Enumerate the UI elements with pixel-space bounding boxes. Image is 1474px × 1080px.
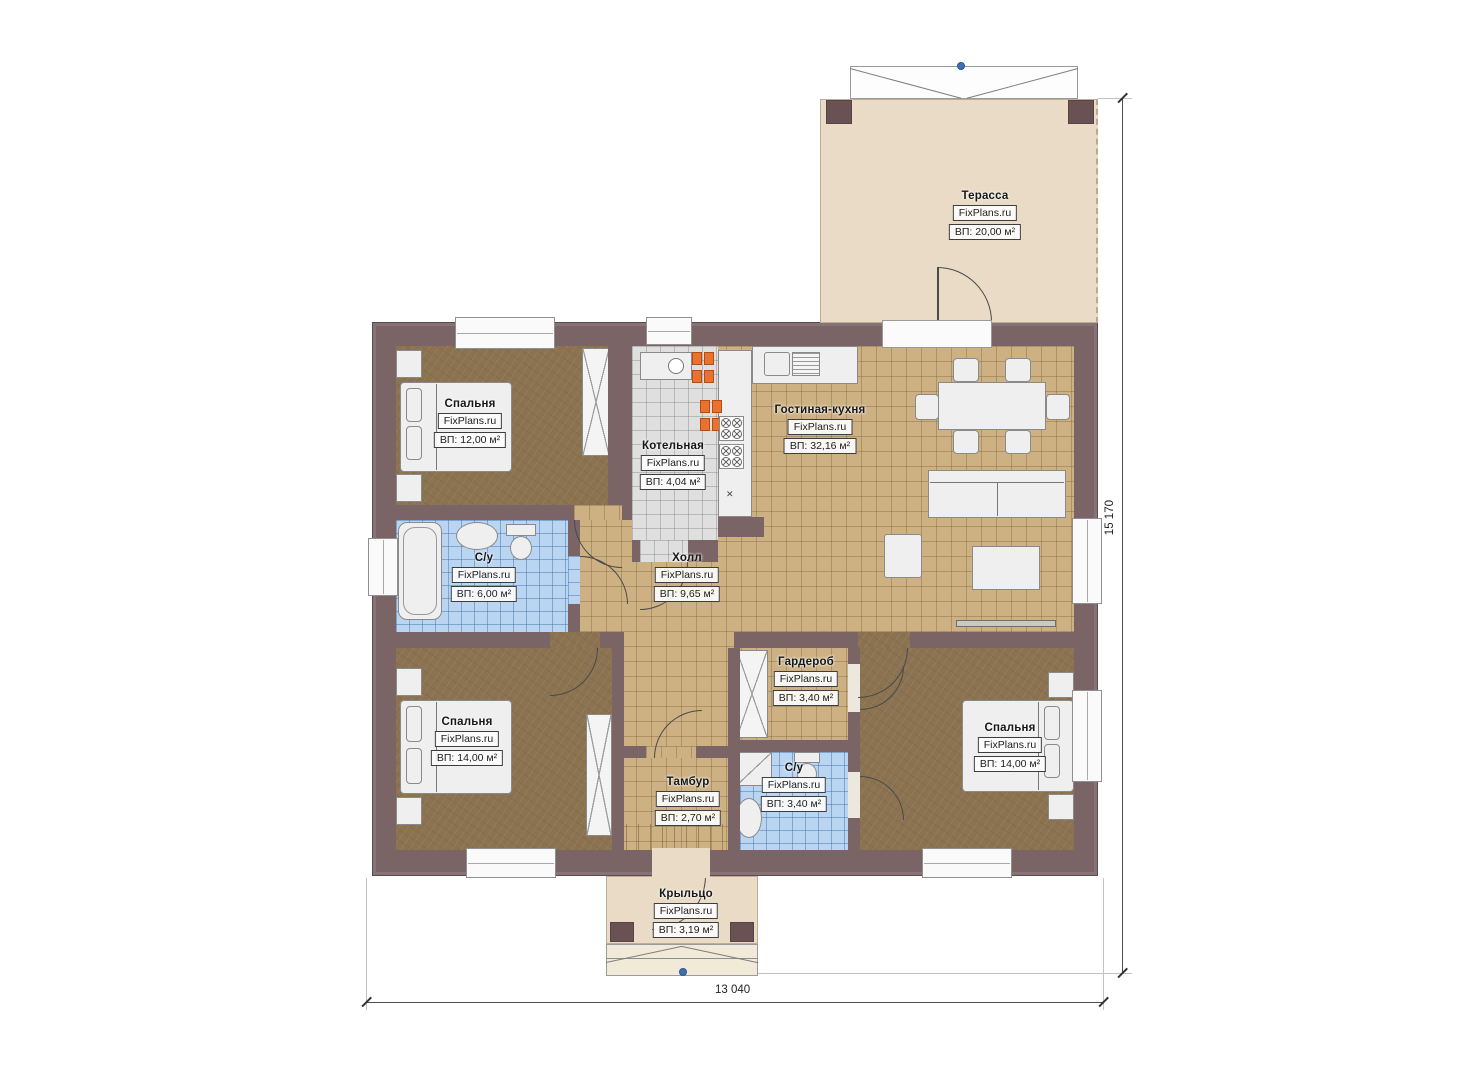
porch-post <box>610 922 634 942</box>
dimension-label-height: 15 170 <box>1104 500 1116 535</box>
room-label-hall: Холл FixPlans.ru ВП: 9,65 м² <box>654 552 720 602</box>
area-label: ВП: 3,40 м² <box>761 796 827 812</box>
room-label-wardrobe: Гардероб FixPlans.ru ВП: 3,40 м² <box>773 656 839 706</box>
extension-line <box>1103 878 1104 1010</box>
terrace-post <box>1068 100 1094 124</box>
room-name-label: Спальня <box>434 398 506 410</box>
brand-label: FixPlans.ru <box>953 205 1018 221</box>
dining-table-symbol <box>938 382 1046 430</box>
nightstand-symbol <box>396 350 422 378</box>
room-name-label: Спальня <box>974 722 1046 734</box>
interior-wall <box>612 648 624 850</box>
door-opening <box>652 848 710 878</box>
brand-label: FixPlans.ru <box>655 567 720 583</box>
area-label: ВП: 3,19 м² <box>653 922 719 938</box>
brand-label: FixPlans.ru <box>788 419 853 435</box>
extension-line <box>366 878 367 1010</box>
pillow <box>406 748 422 784</box>
room-name-label: Тамбур <box>655 776 721 788</box>
sink-marker-icon: ✕ <box>726 490 734 499</box>
toilet-tank <box>506 524 536 536</box>
armchair-symbol <box>884 534 922 578</box>
pillow <box>406 706 422 742</box>
nightstand-symbol <box>396 797 422 825</box>
chair-symbol <box>1046 394 1070 420</box>
survey-point-icon <box>957 62 965 70</box>
area-label: ВП: 3,40 м² <box>773 690 839 706</box>
room-label-tambour: Тамбур FixPlans.ru ВП: 2,70 м² <box>655 776 721 826</box>
room-name-label: Гардероб <box>773 656 839 668</box>
room-name-label: С/у <box>451 552 517 564</box>
tambour-mat <box>626 824 728 850</box>
extension-line <box>758 973 1132 974</box>
sink-drainer <box>792 352 820 376</box>
pillow <box>406 426 422 460</box>
extension-line <box>1098 98 1132 99</box>
room-label-boiler: Котельная FixPlans.ru ВП: 4,04 м² <box>640 440 706 490</box>
room-label-terrace: Терасса FixPlans.ru ВП: 20,00 м² <box>949 190 1021 240</box>
sofa-cushion-divider <box>997 483 998 516</box>
closet-symbol <box>736 650 768 738</box>
area-label: ВП: 14,00 м² <box>431 750 503 766</box>
door-opening <box>550 632 600 648</box>
area-label: ВП: 6,00 м² <box>451 586 517 602</box>
wardrobe-symbol <box>582 348 610 456</box>
room-label-porch: Крыльцо FixPlans.ru ВП: 3,19 м² <box>653 888 719 938</box>
pillow <box>406 388 422 422</box>
area-label: ВП: 9,65 м² <box>654 586 720 602</box>
survey-point-icon <box>679 968 687 976</box>
nightstand-symbol <box>1048 794 1074 820</box>
room-name-label: Холл <box>654 552 720 564</box>
chair-symbol <box>1005 430 1031 454</box>
chair-symbol <box>953 430 979 454</box>
chair-symbol <box>915 394 939 420</box>
wardrobe-symbol <box>586 714 612 836</box>
radiator-symbol <box>692 370 714 383</box>
interior-wall <box>740 740 848 752</box>
room-name-label: Терасса <box>949 190 1021 202</box>
pillow <box>1044 706 1060 740</box>
brand-label: FixPlans.ru <box>641 455 706 471</box>
nightstand-symbol <box>1048 672 1074 698</box>
window <box>1072 690 1102 782</box>
dimension-label-width: 13 040 <box>715 984 750 996</box>
bathtub-inner <box>403 527 437 615</box>
room-name-label: Котельная <box>640 440 706 452</box>
hob-symbol <box>719 444 744 469</box>
area-label: ВП: 4,04 м² <box>640 474 706 490</box>
room-name-label: Спальня <box>431 716 503 728</box>
door-opening <box>574 505 622 520</box>
washbasin-symbol <box>456 522 498 550</box>
room-label-bathroom-main: С/у FixPlans.ru ВП: 6,00 м² <box>451 552 517 602</box>
boiler-symbol <box>640 352 692 380</box>
brand-label: FixPlans.ru <box>438 413 503 429</box>
area-label: ВП: 20,00 м² <box>949 224 1021 240</box>
door-opening <box>848 772 860 818</box>
floor-plan-canvas: ✕ Терасса FixPlans.ru ВП: <box>0 0 1474 1080</box>
window <box>922 848 1012 878</box>
interior-wall <box>728 648 740 850</box>
brand-label: FixPlans.ru <box>978 737 1043 753</box>
door-opening <box>858 632 910 648</box>
door-opening <box>882 320 992 348</box>
area-label: ВП: 32,16 м² <box>784 438 856 454</box>
room-label-bedroom-right: Спальня FixPlans.ru ВП: 14,00 м² <box>974 722 1046 772</box>
interior-wall <box>608 346 632 520</box>
room-label-bedroom-top-left: Спальня FixPlans.ru ВП: 12,00 м² <box>434 398 506 448</box>
chair-symbol <box>953 358 979 382</box>
radiator-symbol <box>692 352 714 365</box>
room-name-label: Гостиная-кухня <box>775 404 866 416</box>
brand-label: FixPlans.ru <box>452 567 517 583</box>
kitchen-sink-symbol <box>764 352 790 376</box>
window <box>368 538 398 596</box>
window <box>1072 518 1102 604</box>
room-label-living-kitchen: Гостиная-кухня FixPlans.ru ВП: 32,16 м² <box>775 404 866 454</box>
radiator-symbol <box>700 400 722 413</box>
door-opening <box>568 556 580 604</box>
area-label: ВП: 14,00 м² <box>974 756 1046 772</box>
brand-label: FixPlans.ru <box>654 903 719 919</box>
dimension-line-horizontal <box>366 1002 1104 1003</box>
interior-wall <box>718 517 764 537</box>
nightstand-symbol <box>396 474 422 502</box>
brand-label: FixPlans.ru <box>762 777 827 793</box>
area-label: ВП: 12,00 м² <box>434 432 506 448</box>
pillow <box>1044 744 1060 778</box>
porch-post <box>730 922 754 942</box>
boiler-dial <box>668 358 684 374</box>
nightstand-symbol <box>396 668 422 696</box>
window <box>455 317 555 349</box>
window <box>646 317 692 345</box>
tv-symbol <box>956 620 1056 627</box>
dimension-line-vertical <box>1122 99 1123 974</box>
room-name-label: Крыльцо <box>653 888 719 900</box>
room-name-label: С/у <box>761 762 827 774</box>
area-label: ВП: 2,70 м² <box>655 810 721 826</box>
chair-symbol <box>1005 358 1031 382</box>
brand-label: FixPlans.ru <box>774 671 839 687</box>
hob-symbol <box>719 416 744 441</box>
terrace-post <box>826 100 852 124</box>
awning-outline <box>850 66 1078 99</box>
window <box>466 848 556 878</box>
brand-label: FixPlans.ru <box>435 731 500 747</box>
room-label-bathroom-small: С/у FixPlans.ru ВП: 3,40 м² <box>761 762 827 812</box>
room-label-bedroom-bottom-left: Спальня FixPlans.ru ВП: 14,00 м² <box>431 716 503 766</box>
brand-label: FixPlans.ru <box>656 791 721 807</box>
coffee-table-symbol <box>972 546 1040 590</box>
